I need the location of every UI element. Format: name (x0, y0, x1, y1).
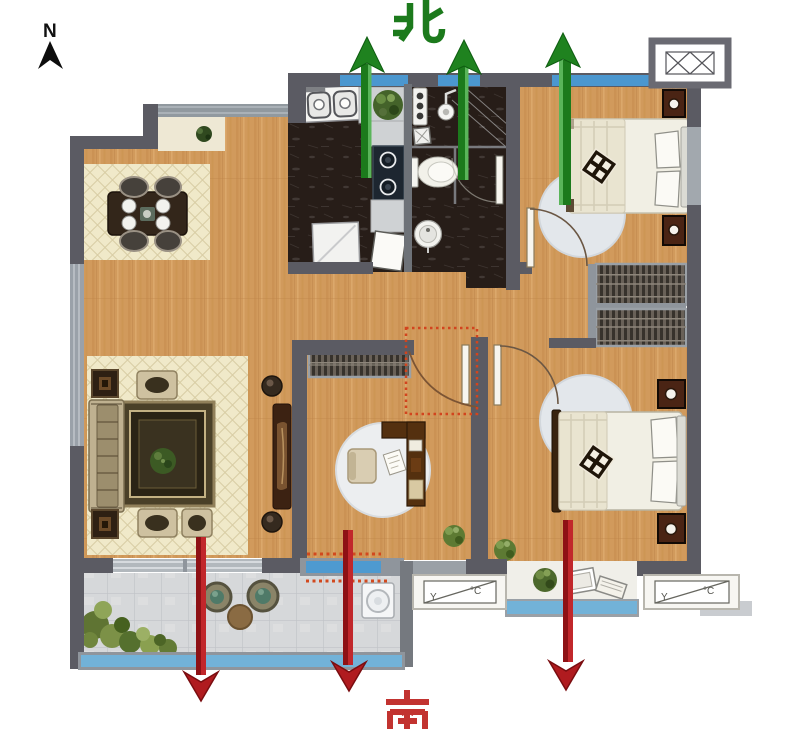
svg-text:Y: Y (661, 592, 668, 603)
svg-text:N: N (43, 21, 57, 42)
svg-text:°C: °C (470, 586, 481, 597)
svg-text:Y: Y (430, 592, 437, 603)
svg-text:°C: °C (703, 586, 714, 597)
